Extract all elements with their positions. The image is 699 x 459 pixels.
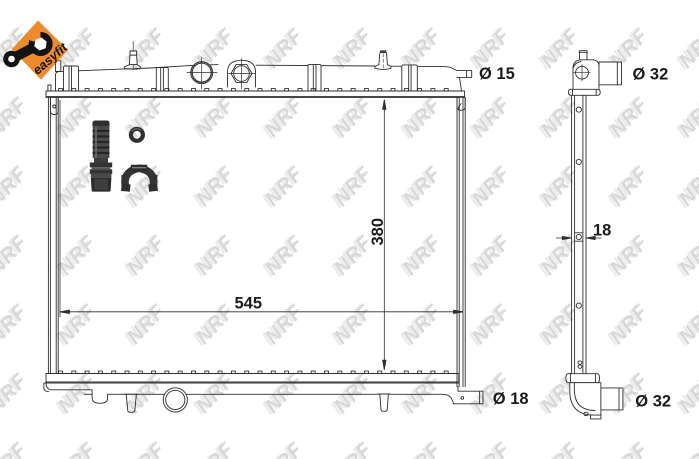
svg-text:380: 380 — [369, 218, 387, 246]
svg-text:Ø 18: Ø 18 — [493, 390, 529, 408]
svg-text:Ø 15: Ø 15 — [479, 65, 515, 83]
svg-text:Ø 32: Ø 32 — [635, 392, 671, 410]
svg-text:545: 545 — [235, 295, 263, 313]
svg-text:Ø 32: Ø 32 — [633, 65, 669, 83]
svg-text:18: 18 — [593, 222, 611, 240]
